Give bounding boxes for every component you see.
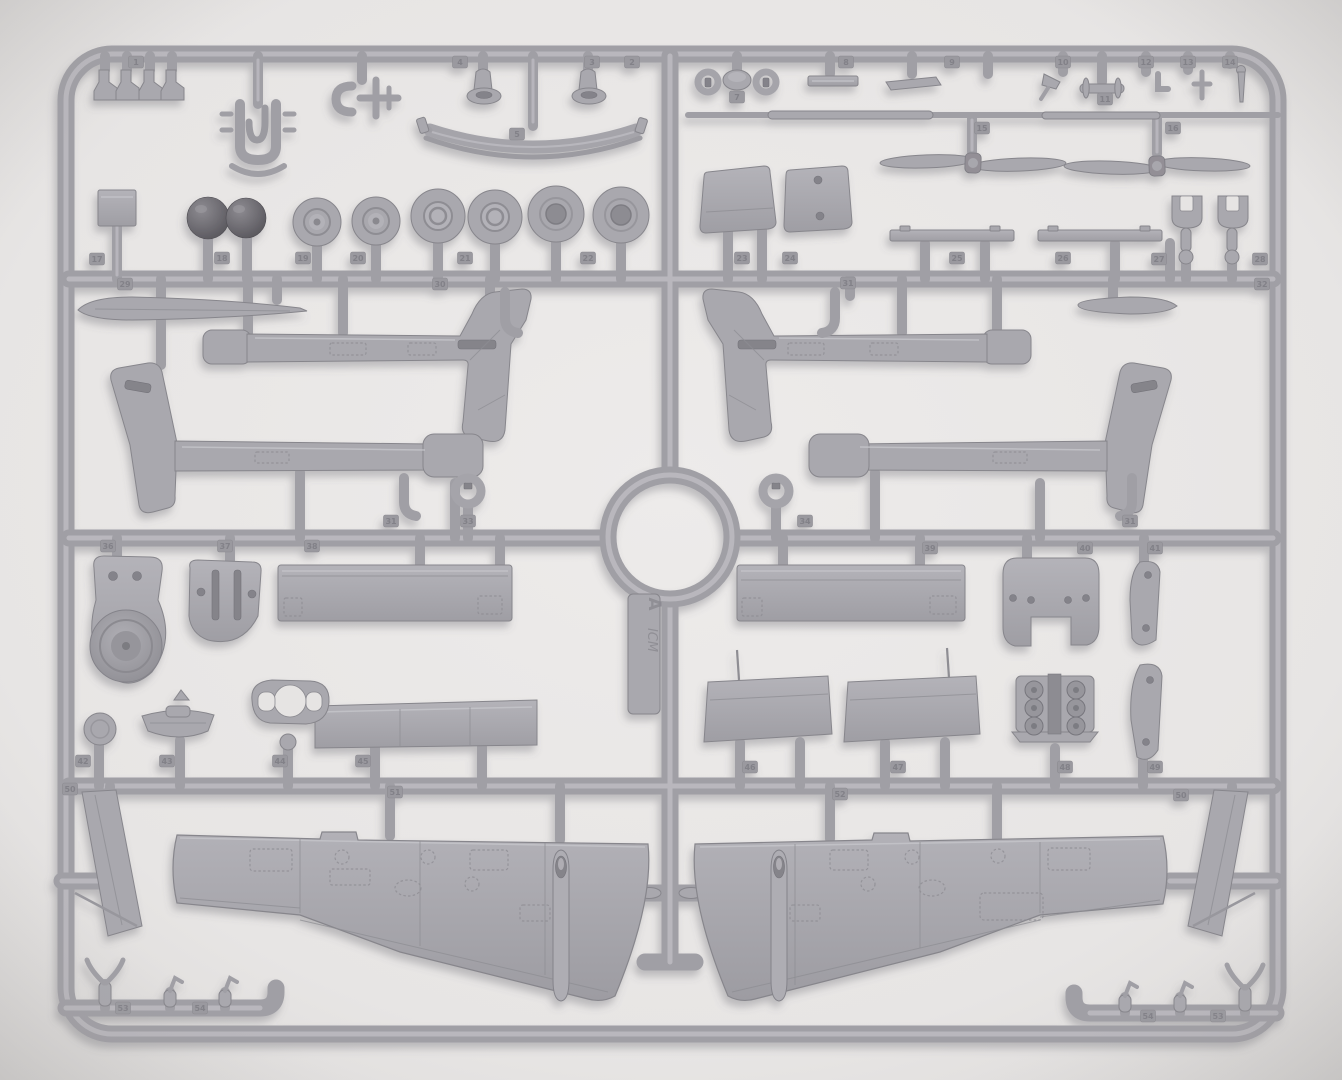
vignette-overlay [0, 0, 1342, 1080]
sprue-scene: A ICM [0, 0, 1342, 1080]
sprue-photo: A ICM [0, 0, 1342, 1080]
